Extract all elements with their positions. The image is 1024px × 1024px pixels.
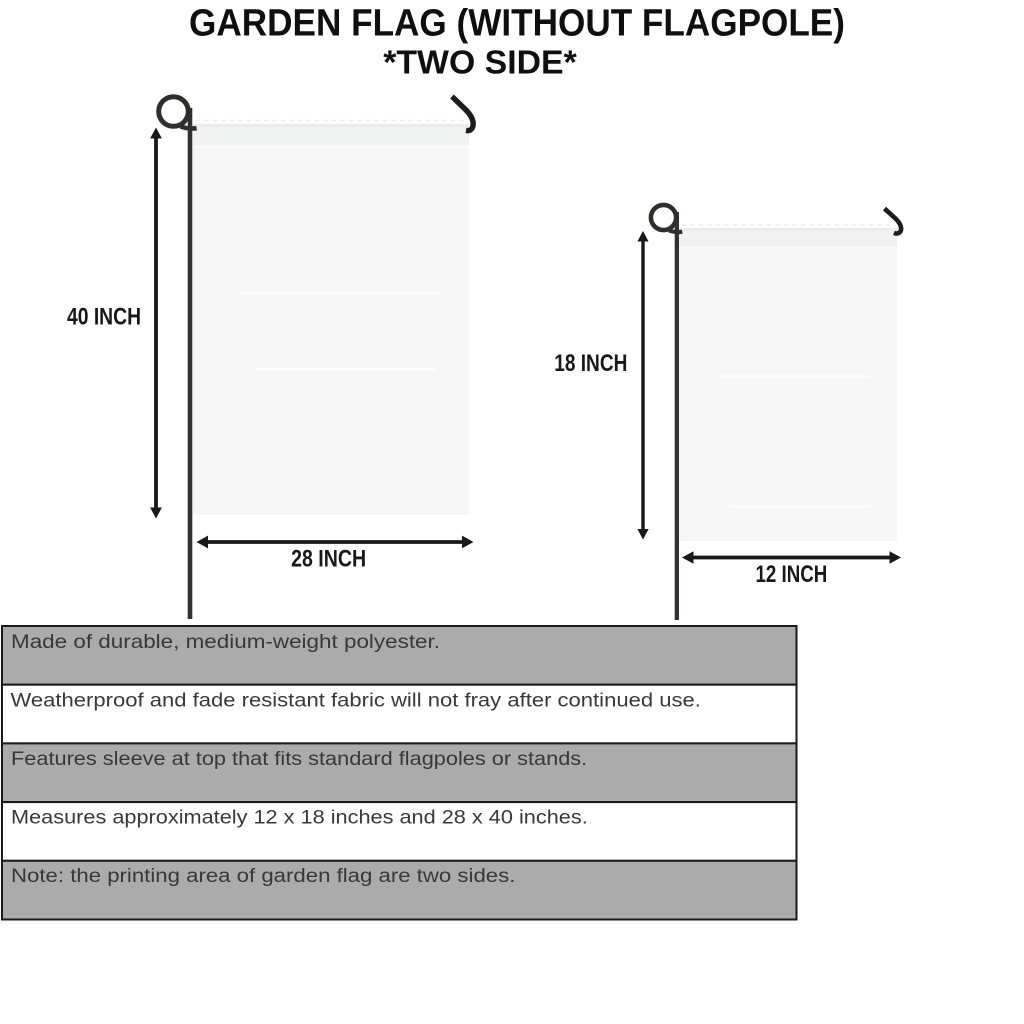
svg-text:40 INCH: 40 INCH — [67, 302, 141, 330]
svg-text:18 INCH: 18 INCH — [554, 349, 627, 377]
svg-text:Note: the printing area of gar: Note: the printing area of garden flag a… — [11, 865, 515, 886]
svg-text:*TWO SIDE*: *TWO SIDE* — [383, 45, 577, 82]
svg-text:GARDEN FLAG (WITHOUT FLAGPOLE): GARDEN FLAG (WITHOUT FLAGPOLE) — [189, 1, 845, 44]
svg-text:Made of durable, medium-weight: Made of durable, medium-weight polyester… — [11, 631, 440, 652]
svg-text:Measures approximately 12 x 18: Measures approximately 12 x 18 inches an… — [11, 806, 588, 828]
svg-text:28 INCH: 28 INCH — [291, 545, 366, 572]
svg-text:Features sleeve at top that fi: Features sleeve at top that fits standar… — [11, 748, 587, 770]
svg-text:12 INCH: 12 INCH — [756, 561, 828, 588]
svg-text:Weatherproof and fade resistan: Weatherproof and fade resistant fabric w… — [11, 690, 701, 712]
